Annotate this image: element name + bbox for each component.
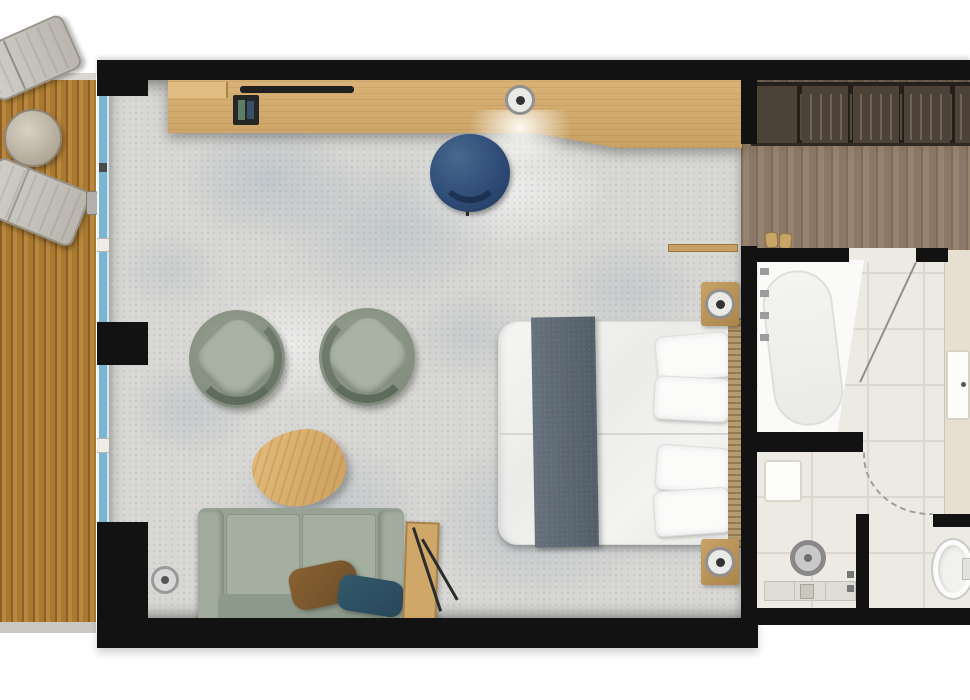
armchair-backrest	[322, 311, 412, 403]
wall-top	[97, 60, 970, 80]
wall-right-upper	[741, 80, 757, 144]
window-frame-break	[97, 438, 109, 453]
wall-top-left-corner	[97, 60, 148, 96]
wall-hall-bath-left	[741, 248, 849, 262]
wall-bath-mid	[757, 432, 863, 452]
wall-left-column	[97, 322, 148, 365]
desk-chair	[430, 134, 510, 212]
nightstand-lamp	[705, 547, 735, 577]
ceiling-speaker	[151, 566, 179, 594]
tub-faucet-fitting	[760, 290, 769, 297]
wall-right-lower	[741, 246, 757, 648]
shower-control	[847, 585, 854, 592]
swivel-armchair-right	[319, 308, 415, 406]
threshold-trim	[668, 244, 738, 252]
toilet-hinge	[962, 558, 970, 580]
ceiling-light	[505, 85, 535, 115]
amenity-tray	[233, 95, 259, 125]
sink-faucet-dot	[961, 382, 966, 387]
wall-bottom	[97, 618, 758, 648]
desk-shelf-module	[168, 82, 228, 98]
shower-drain	[800, 584, 814, 599]
bed-pillow	[652, 486, 731, 537]
shower-control	[847, 571, 854, 578]
wardrobe-hangers	[800, 94, 968, 140]
floor-plan-canvas	[0, 0, 970, 700]
window-frame-break	[97, 238, 109, 252]
tub-faucet-fitting	[760, 268, 769, 275]
slipper-right	[778, 232, 792, 249]
tub-faucet-fitting	[760, 312, 769, 319]
desk-groove	[240, 86, 354, 93]
rain-shower-head	[790, 540, 826, 576]
deck-round-table	[4, 109, 62, 167]
bed-runner	[531, 316, 599, 547]
side-table	[402, 521, 439, 622]
swivel-armchair-left	[189, 310, 285, 408]
bathtub-basin	[759, 266, 847, 429]
bed-pillow	[653, 375, 731, 423]
wall-bath-bottom	[757, 608, 970, 625]
wall-shower-partition	[856, 514, 869, 610]
nightstand-lamp	[705, 289, 735, 319]
sofa	[198, 508, 404, 626]
wall-bath-stub	[933, 514, 970, 527]
armchair-backrest	[192, 313, 282, 405]
shower-shelf	[764, 460, 802, 502]
window-latch	[99, 163, 107, 172]
window-glass-wall	[97, 96, 109, 523]
slipper-left	[764, 231, 779, 248]
sink	[946, 350, 970, 420]
tub-faucet-fitting	[760, 334, 769, 341]
wall-hall-bath-right	[916, 248, 948, 262]
deck-edge-bottom	[0, 622, 96, 633]
